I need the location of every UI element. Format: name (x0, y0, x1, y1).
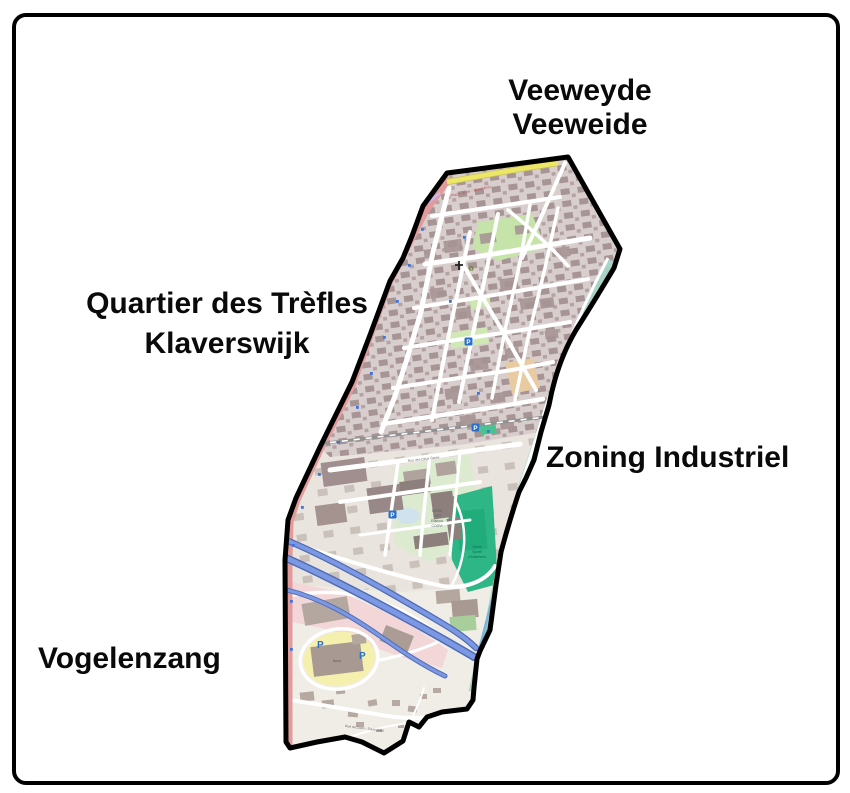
district-label-line: Zoning Industriel (546, 441, 789, 475)
svg-text:Sportif: Sportif (472, 550, 481, 554)
recycling-icon: ♻ (468, 266, 474, 273)
svg-text:CVO: CVO (433, 514, 441, 518)
parking-letter: P (359, 651, 366, 662)
campus-label: CERIA CVO Elishout COOVI (431, 509, 443, 528)
parking-letter: P (317, 640, 324, 651)
district-label-line: Vogelenzang (38, 642, 221, 676)
district-label-vogelenzang: Vogelenzang (38, 642, 221, 676)
svg-text:Centre: Centre (472, 545, 482, 549)
figure-canvas: { "figure": { "type": "district-map", "b… (0, 0, 850, 793)
district-label-line: Klaverswijk (47, 324, 407, 364)
svg-text:P: P (473, 425, 477, 432)
district-label-line: Quartier des Trèfles (47, 284, 407, 324)
svg-text:CERIA: CERIA (432, 509, 443, 513)
district-label-veeweyde: Veeweyde Veeweide (430, 74, 730, 141)
svg-text:Elishout: Elishout (431, 519, 443, 523)
parking-icon: P (472, 424, 480, 433)
district-label-trefles: Quartier des Trèfles Klaverswijk (47, 284, 407, 364)
svg-text:COOVI: COOVI (432, 524, 443, 528)
district-label-line: Veeweide (430, 108, 730, 142)
pond (396, 508, 420, 524)
svg-text:P: P (390, 512, 394, 519)
svg-text:P: P (466, 339, 470, 346)
district-label-line: Veeweyde (430, 74, 730, 108)
store-label: Ikea (333, 658, 341, 663)
parking-icon: P (465, 338, 473, 347)
parking-icon: P (389, 511, 397, 520)
svg-text:d'Anderlecht: d'Anderlecht (468, 555, 486, 559)
district-label-zoning: Zoning Industriel (546, 441, 789, 475)
